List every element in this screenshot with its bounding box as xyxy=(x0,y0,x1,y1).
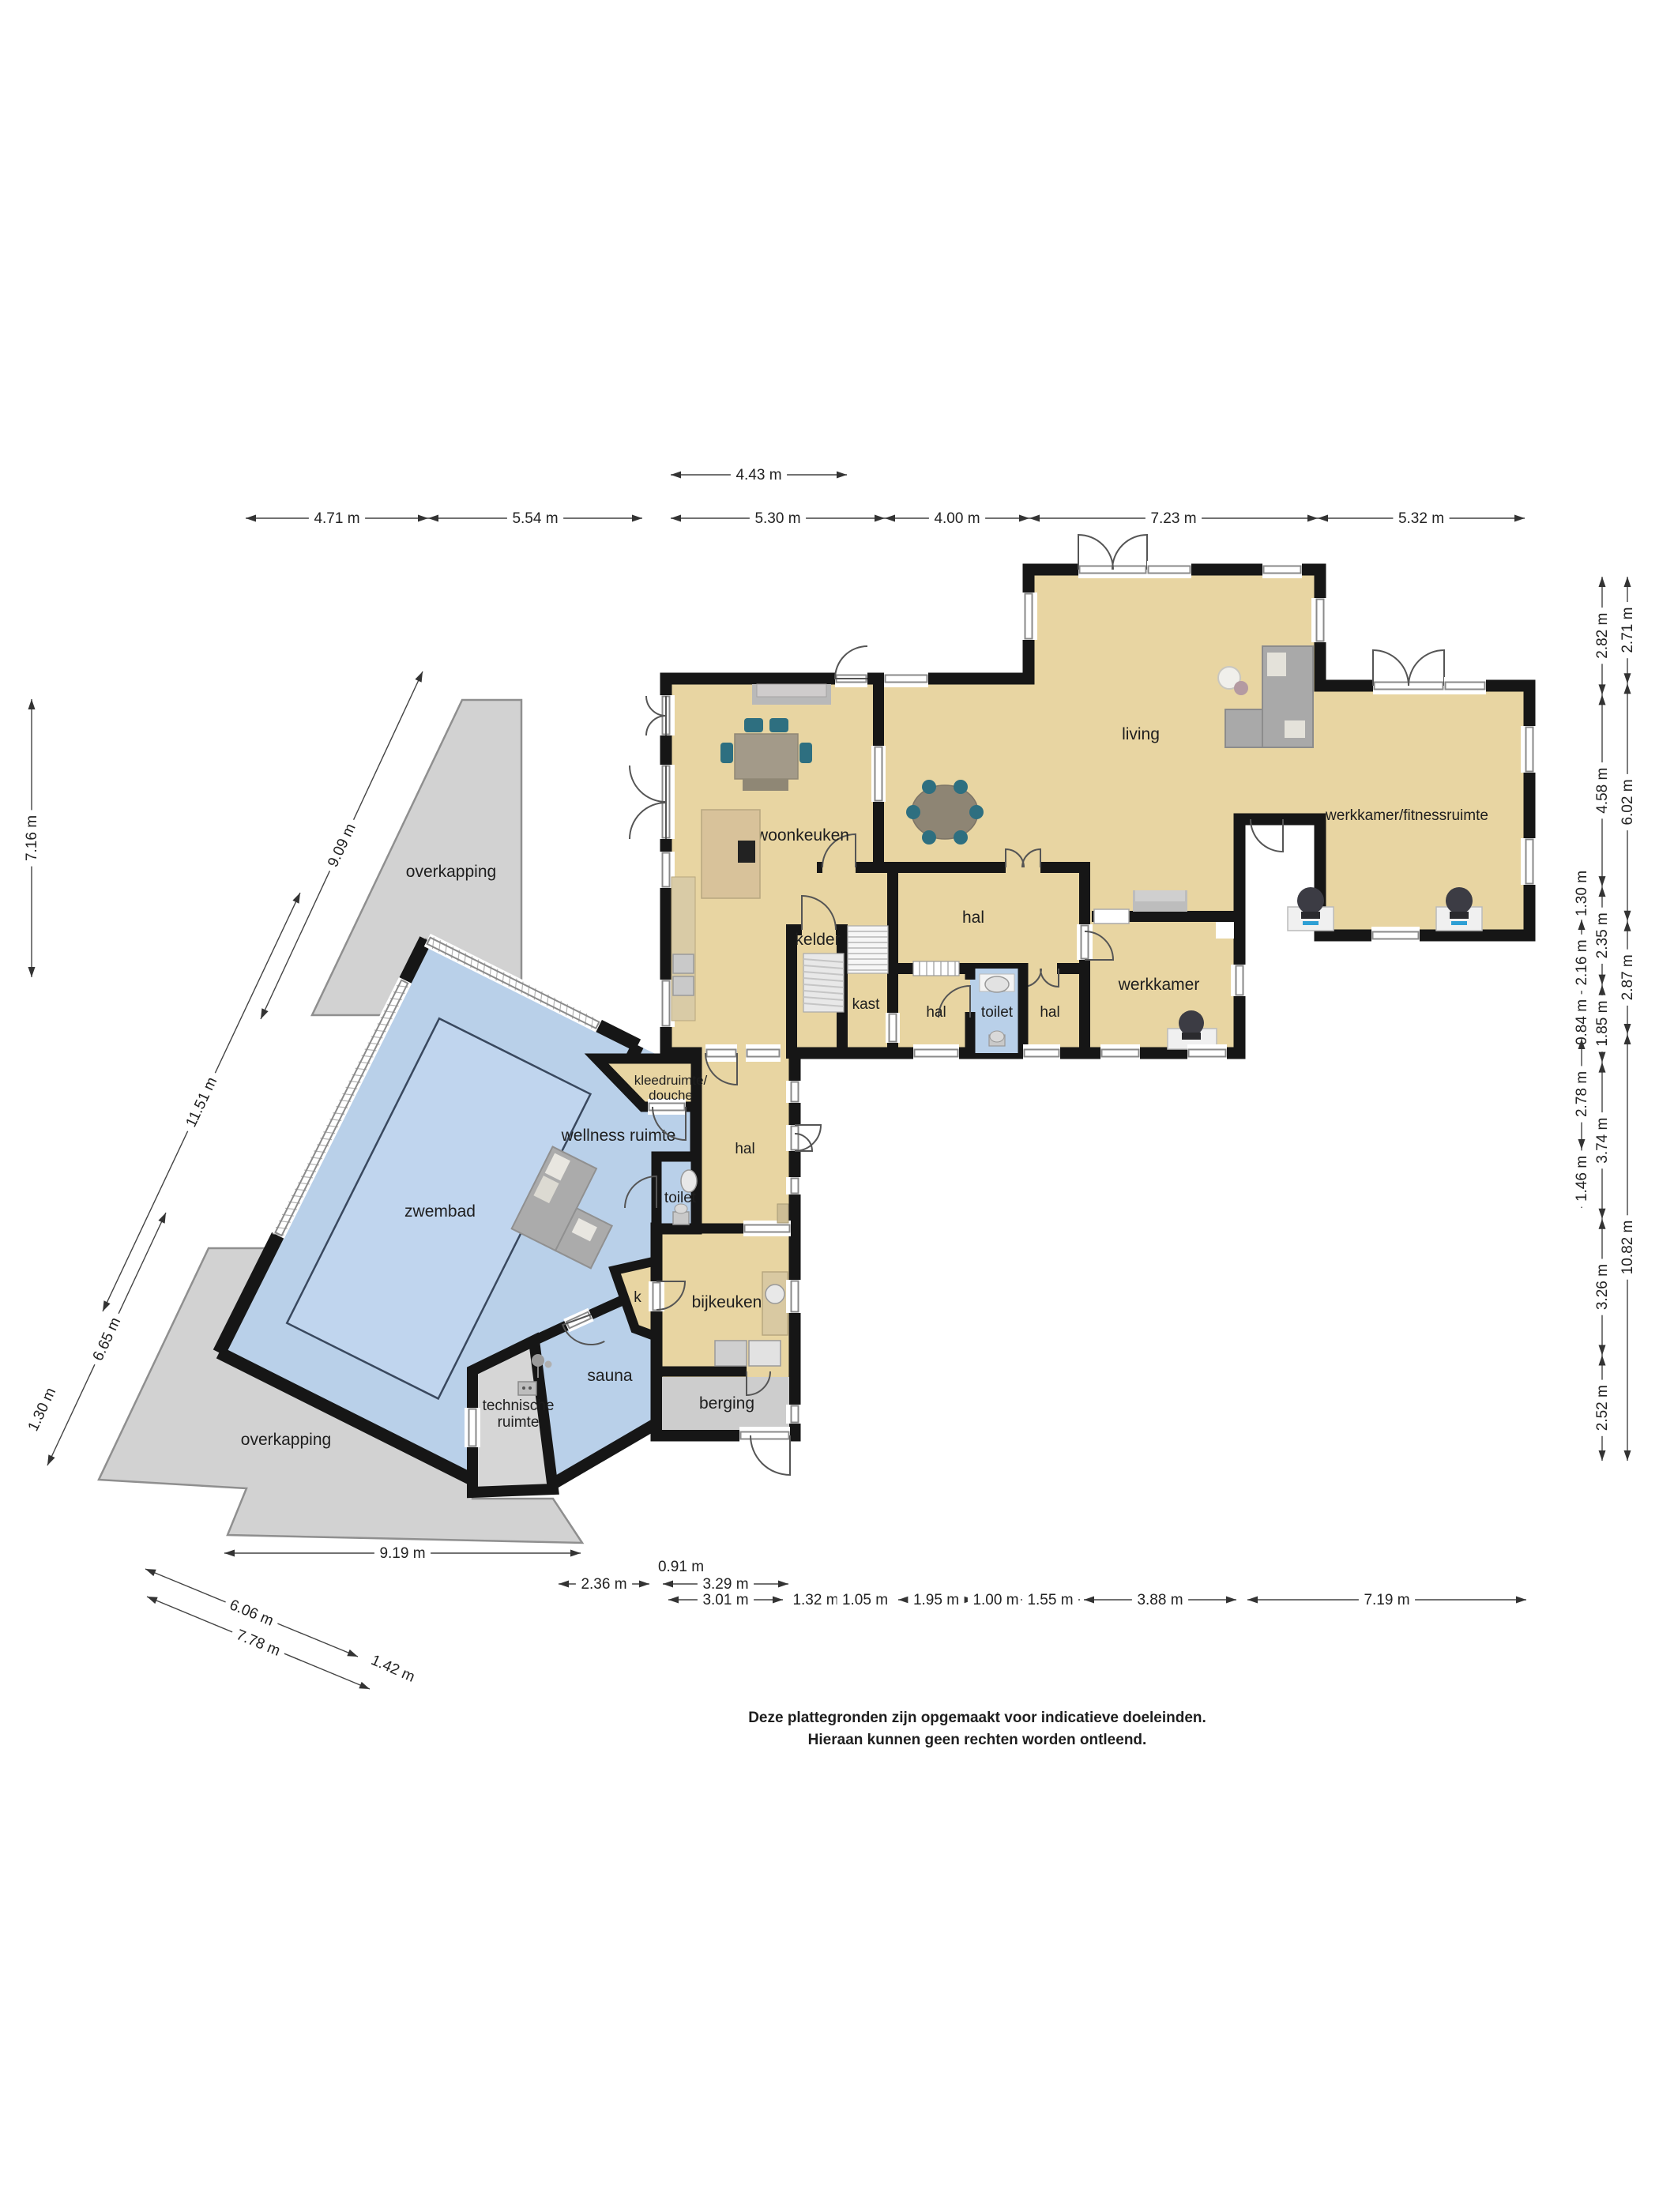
svg-text:10.82 m: 10.82 m xyxy=(1619,1221,1636,1275)
svg-text:woonkeuken: woonkeuken xyxy=(755,826,849,845)
svg-text:5.32 m: 5.32 m xyxy=(1398,510,1444,527)
svg-text:Deze plattegronden zijn opgema: Deze plattegronden zijn opgemaakt voor i… xyxy=(748,1710,1206,1726)
svg-text:1.95 m: 1.95 m xyxy=(913,1592,959,1608)
svg-text:overkapping: overkapping xyxy=(241,1431,331,1449)
svg-text:5.30 m: 5.30 m xyxy=(754,510,800,527)
svg-text:2.78 m: 2.78 m xyxy=(1574,1071,1590,1117)
svg-text:2.16 m: 2.16 m xyxy=(1574,939,1590,985)
svg-text:technische: technische xyxy=(483,1398,555,1414)
svg-text:berging: berging xyxy=(699,1394,754,1413)
svg-text:4.00 m: 4.00 m xyxy=(934,510,980,527)
svg-text:7.23 m: 7.23 m xyxy=(1150,510,1196,527)
svg-text:1.55 m: 1.55 m xyxy=(1027,1592,1073,1608)
svg-text:7.19 m: 7.19 m xyxy=(1364,1592,1409,1608)
svg-text:7.16 m: 7.16 m xyxy=(24,815,40,861)
svg-text:kleedruimte/: kleedruimte/ xyxy=(634,1073,708,1088)
svg-text:hal: hal xyxy=(926,1004,946,1021)
svg-text:1.85 m: 1.85 m xyxy=(1594,1001,1611,1047)
svg-text:toilet: toilet xyxy=(664,1190,697,1206)
svg-text:6.02 m: 6.02 m xyxy=(1619,779,1636,825)
svg-text:4.71 m: 4.71 m xyxy=(314,510,359,527)
svg-text:0.91 m: 0.91 m xyxy=(658,1559,704,1575)
svg-text:kelder: kelder xyxy=(795,931,840,949)
svg-text:zwembad: zwembad xyxy=(404,1202,476,1221)
svg-text:3.29 m: 3.29 m xyxy=(702,1576,748,1593)
svg-text:Hieraan kunnen geen rechten wo: Hieraan kunnen geen rechten worden ontle… xyxy=(808,1732,1147,1748)
svg-text:2.71 m: 2.71 m xyxy=(1619,608,1636,653)
svg-text:overkapping: overkapping xyxy=(406,863,496,881)
svg-text:toilet: toilet xyxy=(981,1004,1014,1021)
svg-text:douche: douche xyxy=(649,1088,693,1103)
svg-text:hal: hal xyxy=(1040,1004,1059,1021)
svg-text:ruimte: ruimte xyxy=(498,1414,540,1431)
svg-text:wellness ruimte: wellness ruimte xyxy=(561,1127,676,1145)
svg-text:hal: hal xyxy=(735,1141,754,1157)
svg-text:2.87 m: 2.87 m xyxy=(1619,954,1636,1000)
svg-text:2.36 m: 2.36 m xyxy=(581,1576,626,1593)
svg-text:4.58 m: 4.58 m xyxy=(1594,768,1611,814)
svg-text:werkkamer/fitnessruimte: werkkamer/fitnessruimte xyxy=(1325,807,1488,824)
svg-text:1.32 m: 1.32 m xyxy=(792,1592,838,1608)
svg-text:kast: kast xyxy=(852,996,881,1013)
svg-text:3.88 m: 3.88 m xyxy=(1137,1592,1183,1608)
svg-text:k: k xyxy=(634,1289,641,1306)
svg-text:1.05 m: 1.05 m xyxy=(842,1592,888,1608)
svg-text:bijkeuken: bijkeuken xyxy=(692,1293,762,1311)
svg-text:2.52 m: 2.52 m xyxy=(1594,1385,1611,1431)
svg-text:living: living xyxy=(1122,725,1160,743)
svg-text:2.82 m: 2.82 m xyxy=(1594,613,1611,659)
svg-text:2.35 m: 2.35 m xyxy=(1594,912,1611,958)
svg-text:9.19 m: 9.19 m xyxy=(379,1545,425,1562)
svg-text:4.43 m: 4.43 m xyxy=(735,467,781,483)
svg-text:5.54 m: 5.54 m xyxy=(512,510,558,527)
svg-text:hal: hal xyxy=(962,908,984,927)
svg-text:0.84 m: 0.84 m xyxy=(1574,999,1590,1045)
svg-text:1.30 m: 1.30 m xyxy=(1574,871,1590,916)
svg-text:werkkamer: werkkamer xyxy=(1118,976,1200,994)
svg-text:3.26 m: 3.26 m xyxy=(1594,1264,1611,1310)
svg-text:1.46 m: 1.46 m xyxy=(1574,1156,1590,1202)
svg-text:3.01 m: 3.01 m xyxy=(702,1592,748,1608)
svg-text:3.74 m: 3.74 m xyxy=(1594,1118,1611,1164)
svg-text:sauna: sauna xyxy=(587,1367,633,1385)
svg-text:1.00 m: 1.00 m xyxy=(972,1592,1018,1608)
